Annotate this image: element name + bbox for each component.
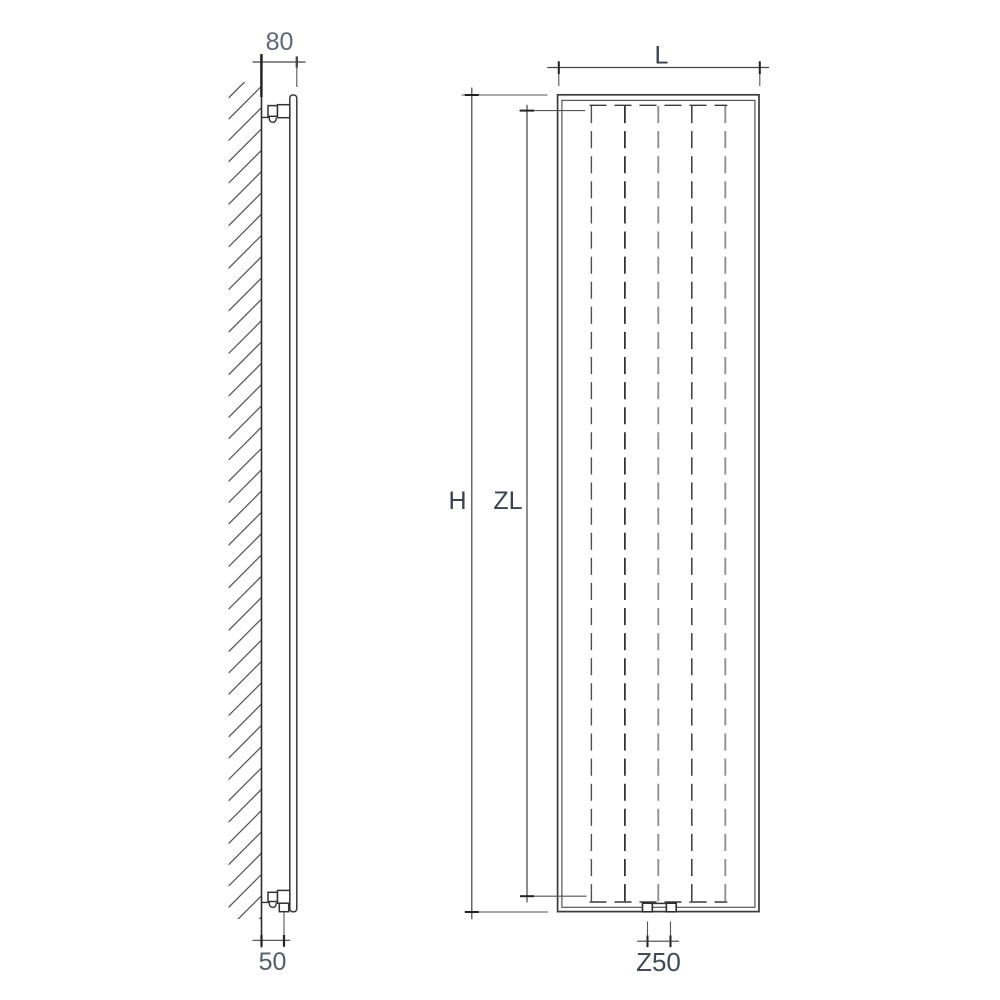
- svg-text:L: L: [655, 42, 669, 70]
- svg-text:H: H: [448, 487, 466, 515]
- svg-text:Z50: Z50: [636, 947, 681, 977]
- svg-text:50: 50: [259, 948, 287, 976]
- svg-text:80: 80: [266, 28, 294, 56]
- svg-text:ZL: ZL: [493, 487, 522, 515]
